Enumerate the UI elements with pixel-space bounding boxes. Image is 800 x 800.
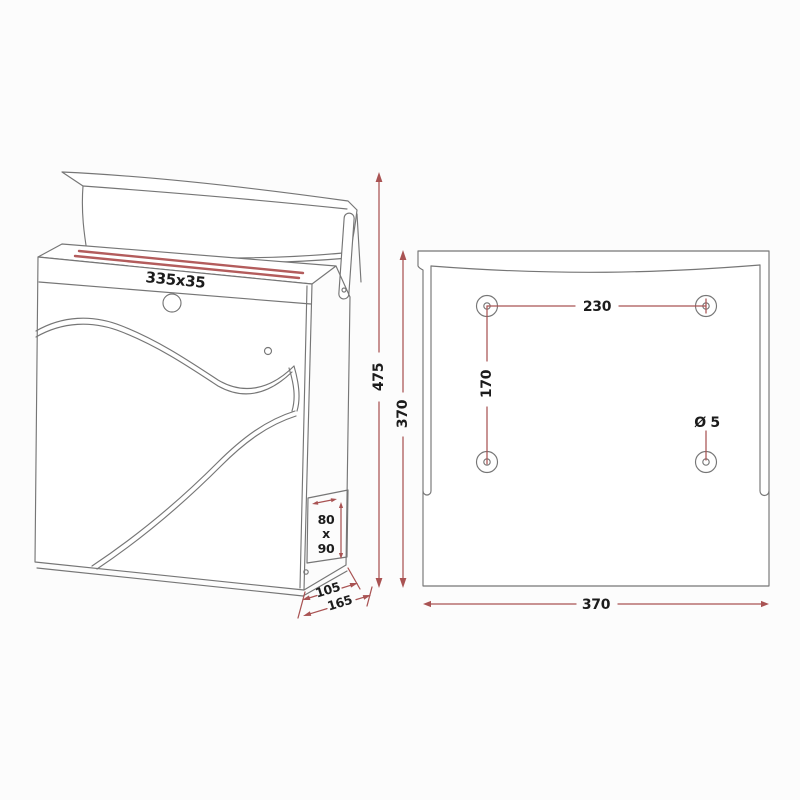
lid-back-edge-line [357, 214, 361, 282]
arrowhead-90-top [339, 502, 343, 508]
technical-drawing: 335x35 475 370 105 165 [0, 0, 800, 800]
overall-height-label: 475 [371, 363, 387, 391]
arrowhead-80-left [312, 501, 318, 505]
side-opening-height-label: 90 [318, 541, 335, 556]
arrowhead-475-bottom [376, 578, 383, 588]
diagram-canvas: 335x35 475 370 105 165 [0, 0, 800, 800]
body-height-label: 370 [395, 399, 411, 428]
arrowhead-165-left [303, 611, 311, 616]
dim-line-80 [317, 500, 331, 503]
hole-spacing-vertical-label: 170 [479, 369, 495, 398]
hole-spacing-horizontal-label: 230 [583, 299, 612, 315]
dimension-plate-width: 370 [423, 597, 769, 613]
arrowhead-370l-top [400, 250, 407, 260]
back-view: 230 170 Ø 5 370 [418, 251, 769, 613]
side-opening-width-label: 80 [318, 512, 335, 527]
hole-diameter-label: Ø 5 [694, 415, 720, 431]
plate-width-label: 370 [582, 597, 611, 613]
front-view: 335x35 475 370 105 165 [35, 172, 411, 618]
mailbox-body [35, 244, 350, 596]
dimension-body-height: 370 [395, 250, 411, 588]
dimension-side-opening: 80 x 90 [312, 498, 343, 559]
side-opening-separator-label: x [322, 526, 330, 541]
arrowhead-80-right [331, 498, 337, 502]
body-front-face [35, 257, 312, 590]
arrowhead-475-top [376, 172, 383, 182]
dimension-overall-height: 475 [371, 172, 387, 588]
arrowhead-370l-bottom [400, 578, 407, 588]
arrowhead-370r-right [761, 601, 769, 607]
arrowhead-370r-left [423, 601, 431, 607]
